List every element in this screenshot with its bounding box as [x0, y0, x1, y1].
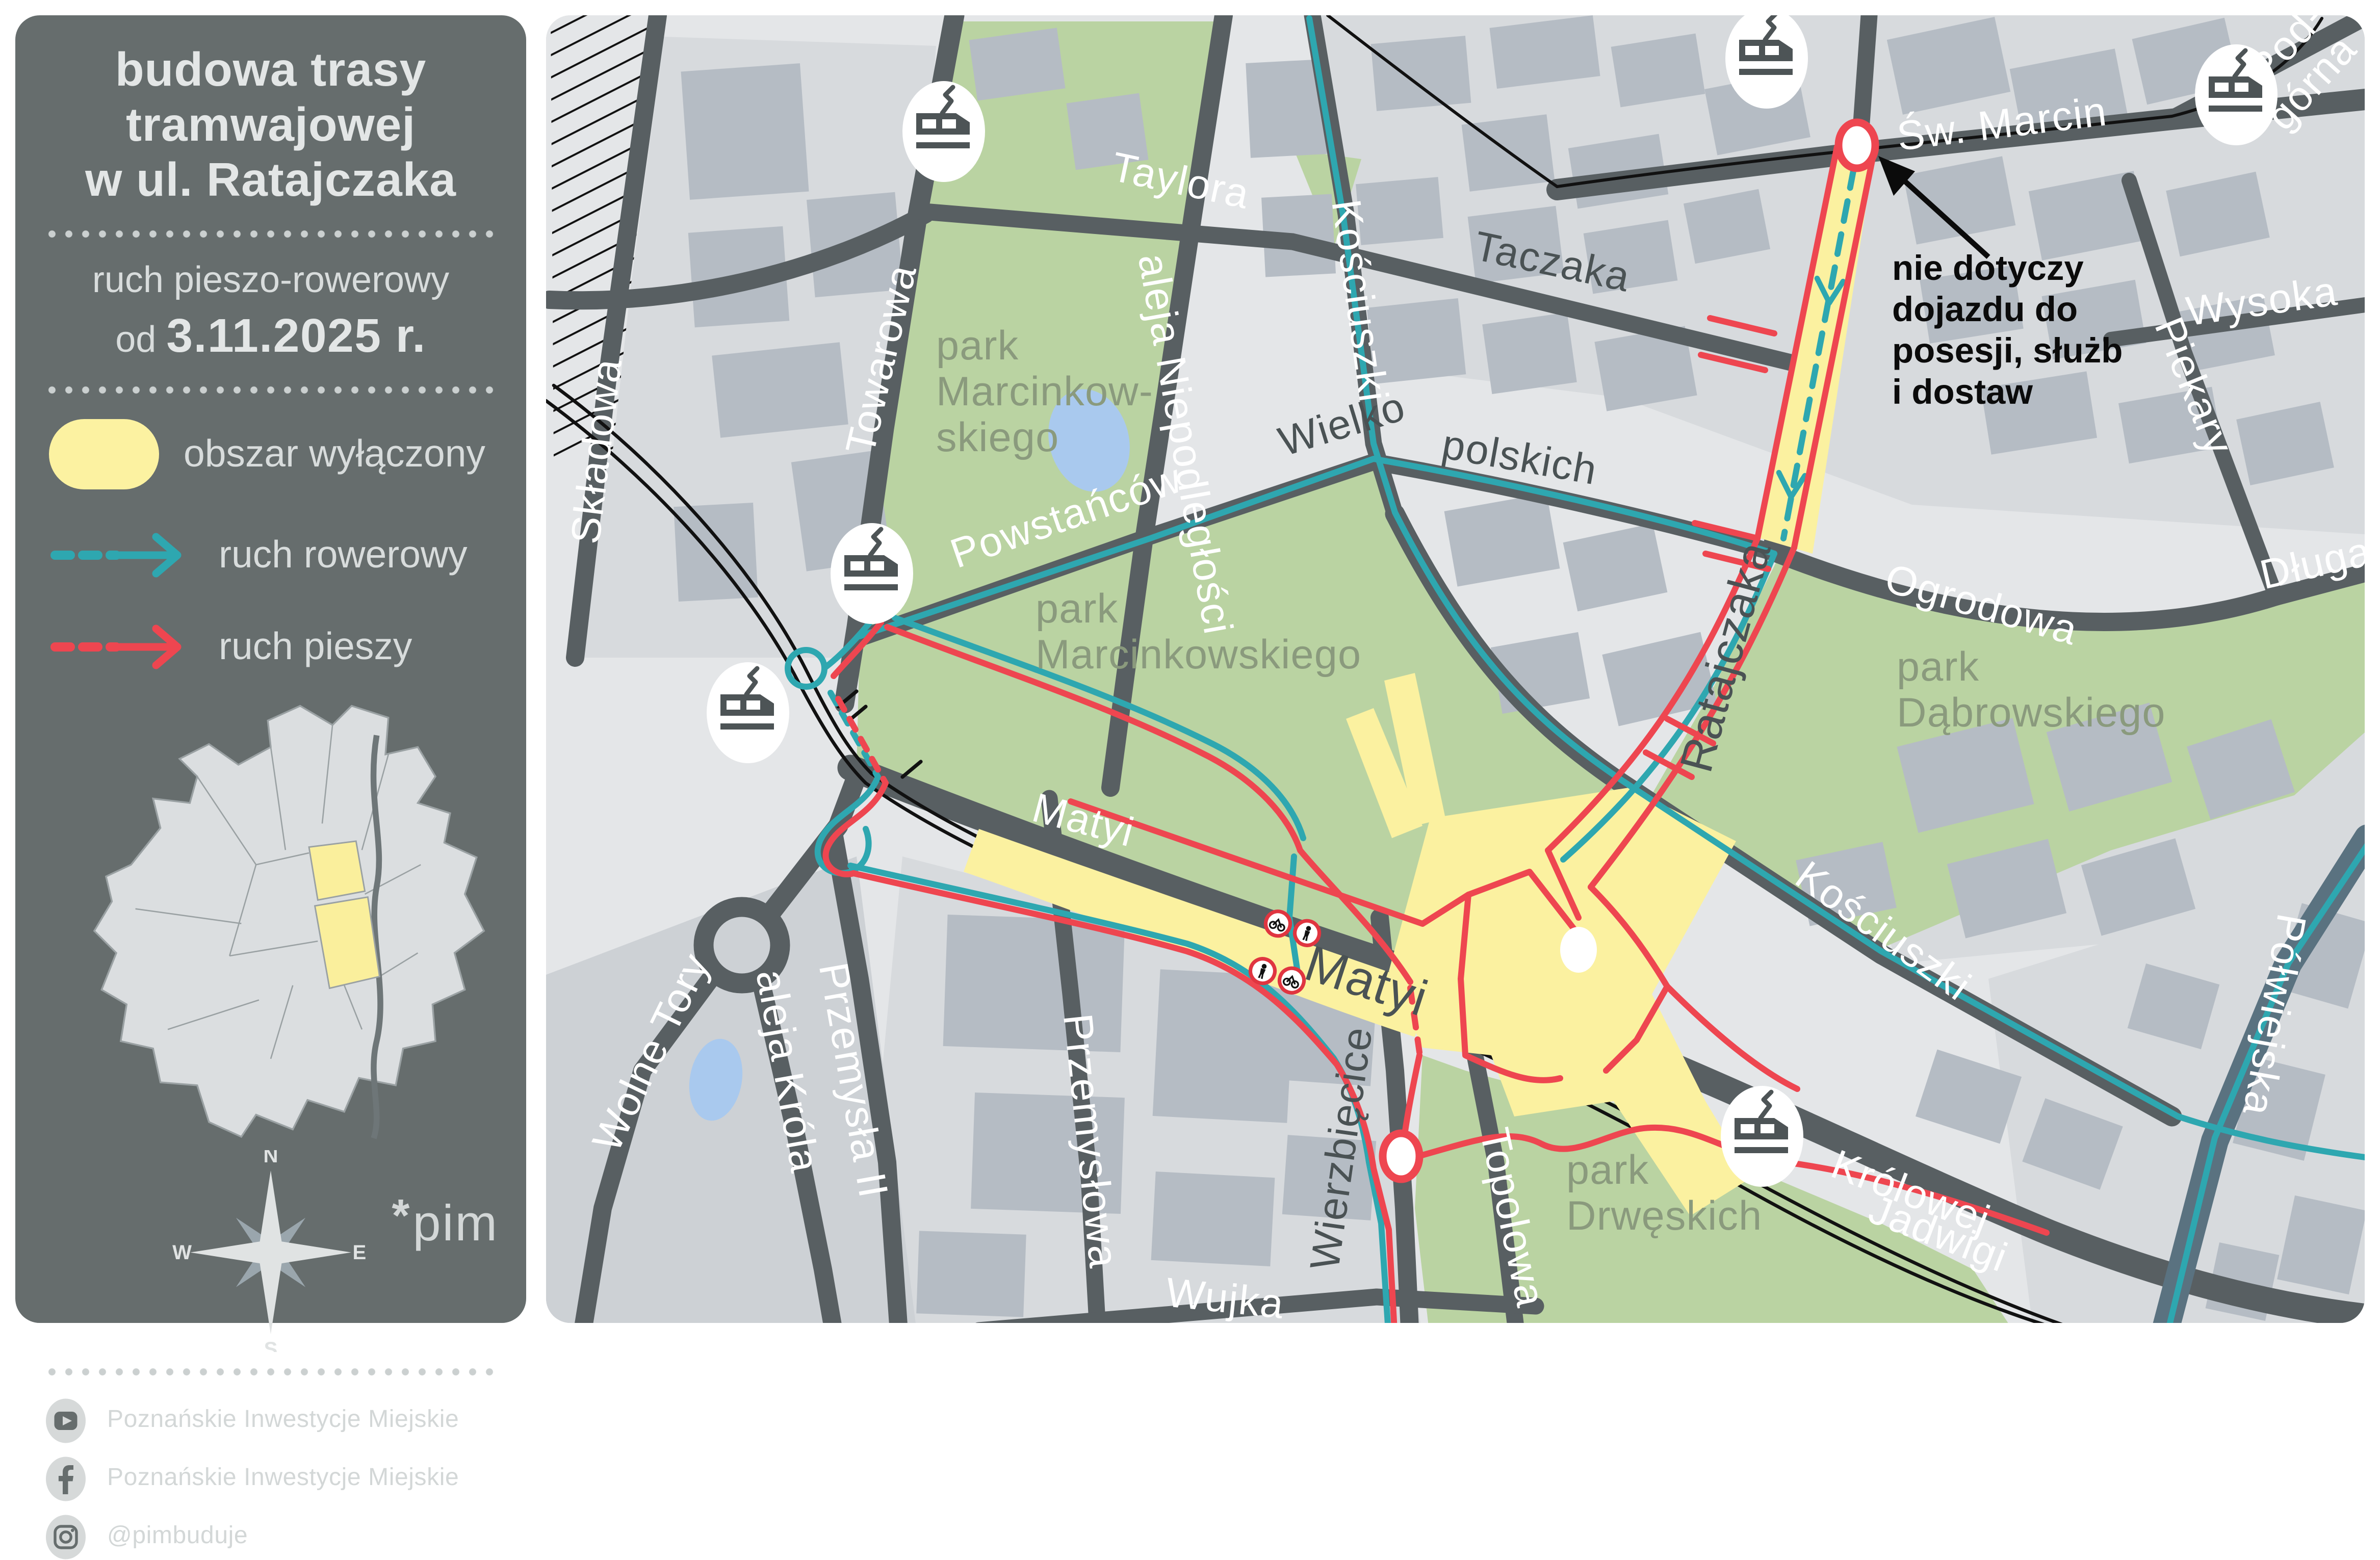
divider — [46, 385, 496, 395]
closure-node — [1383, 1133, 1419, 1179]
map-panel: SkładowaTowarowaTayloraTaczakaŚw. Marcin… — [546, 15, 2365, 1323]
excluded-area-swatch — [49, 419, 159, 489]
tram-stop-icon — [831, 523, 913, 624]
legend-label: ruch rowerowy — [219, 533, 468, 578]
tram-stop-icon — [902, 81, 985, 182]
instagram-icon — [43, 1514, 89, 1560]
subtitle: ruch pieszo-rowerowy — [40, 260, 502, 303]
date-value: 3.11.2025 r. — [166, 309, 426, 362]
social-facebook[interactable]: Poznańskie Inwestycje Miejskie — [43, 1456, 499, 1502]
map-canvas: SkładowaTowarowaTayloraTaczakaŚw. Marcin… — [546, 15, 2365, 1323]
compass-s: S — [264, 1338, 278, 1352]
city-overview-map — [49, 688, 493, 1147]
start-date: od 3.11.2025 r. — [40, 309, 502, 364]
pim-logo: *pim — [392, 1191, 499, 1253]
junction-node — [1560, 927, 1597, 973]
tram-stop-icon — [2195, 44, 2278, 145]
city-outline — [94, 706, 484, 1137]
tram-stop-icon — [707, 662, 789, 763]
social-label: @pimbuduje — [107, 1523, 248, 1551]
compass-main-points — [190, 1171, 351, 1334]
closure-node — [1839, 122, 1875, 168]
social-label: Poznańskie Inwestycje Miejskie — [107, 1407, 459, 1435]
divider — [46, 229, 496, 239]
tram-stop-icon — [1721, 1086, 1803, 1187]
bike-route-arrow — [49, 529, 194, 581]
legend-item-pedestrian-route: ruch pieszy — [49, 621, 493, 673]
page-title: budowa trasy tramwajowej w ul. Ratajczak… — [40, 43, 502, 208]
legend-item-bike-route: ruch rowerowy — [49, 529, 493, 581]
facebook-icon — [43, 1456, 89, 1502]
compass-n: N — [264, 1150, 278, 1167]
youtube-icon — [43, 1398, 89, 1444]
legend-label: obszar wyłączony — [184, 432, 485, 477]
divider — [46, 1367, 496, 1376]
legend-item-excluded-area: obszar wyłączony — [49, 419, 493, 489]
pedestrian-route-arrow — [49, 621, 194, 673]
compass-rose: N S W E — [170, 1150, 372, 1352]
social-label: Poznańskie Inwestycje Miejskie — [107, 1465, 459, 1493]
sidebar: budowa trasy tramwajowej w ul. Ratajczak… — [15, 15, 526, 1323]
compass-w: W — [172, 1241, 192, 1264]
social-instagram[interactable]: @pimbuduje — [43, 1514, 499, 1560]
compass-e: E — [353, 1241, 367, 1264]
legend-label: ruch pieszy — [219, 625, 412, 669]
poster: budowa trasy tramwajowej w ul. Ratajczak… — [0, 0, 2380, 1339]
social-youtube[interactable]: Poznańskie Inwestycje Miejskie — [43, 1398, 499, 1444]
